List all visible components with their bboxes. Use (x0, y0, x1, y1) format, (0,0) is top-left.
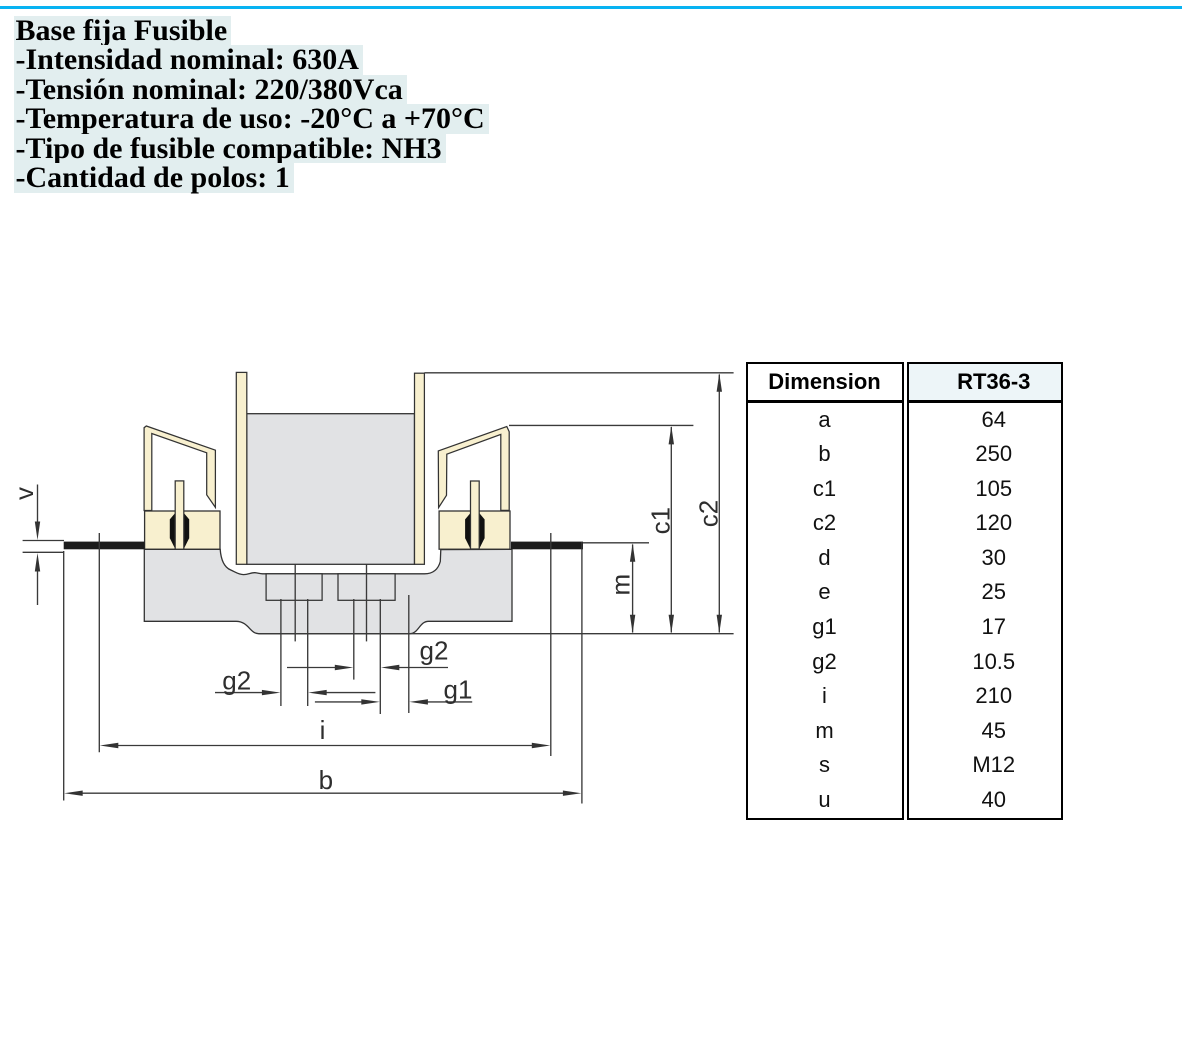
svg-text:m: m (606, 574, 636, 596)
svg-text:v: v (9, 487, 39, 500)
svg-text:i: i (320, 715, 326, 745)
svg-text:g1: g1 (444, 675, 473, 705)
svg-text:g2: g2 (420, 636, 449, 666)
svg-text:c1: c1 (646, 507, 676, 534)
svg-text:b: b (319, 765, 333, 795)
svg-text:c2: c2 (694, 500, 724, 527)
svg-text:g2: g2 (222, 666, 251, 696)
